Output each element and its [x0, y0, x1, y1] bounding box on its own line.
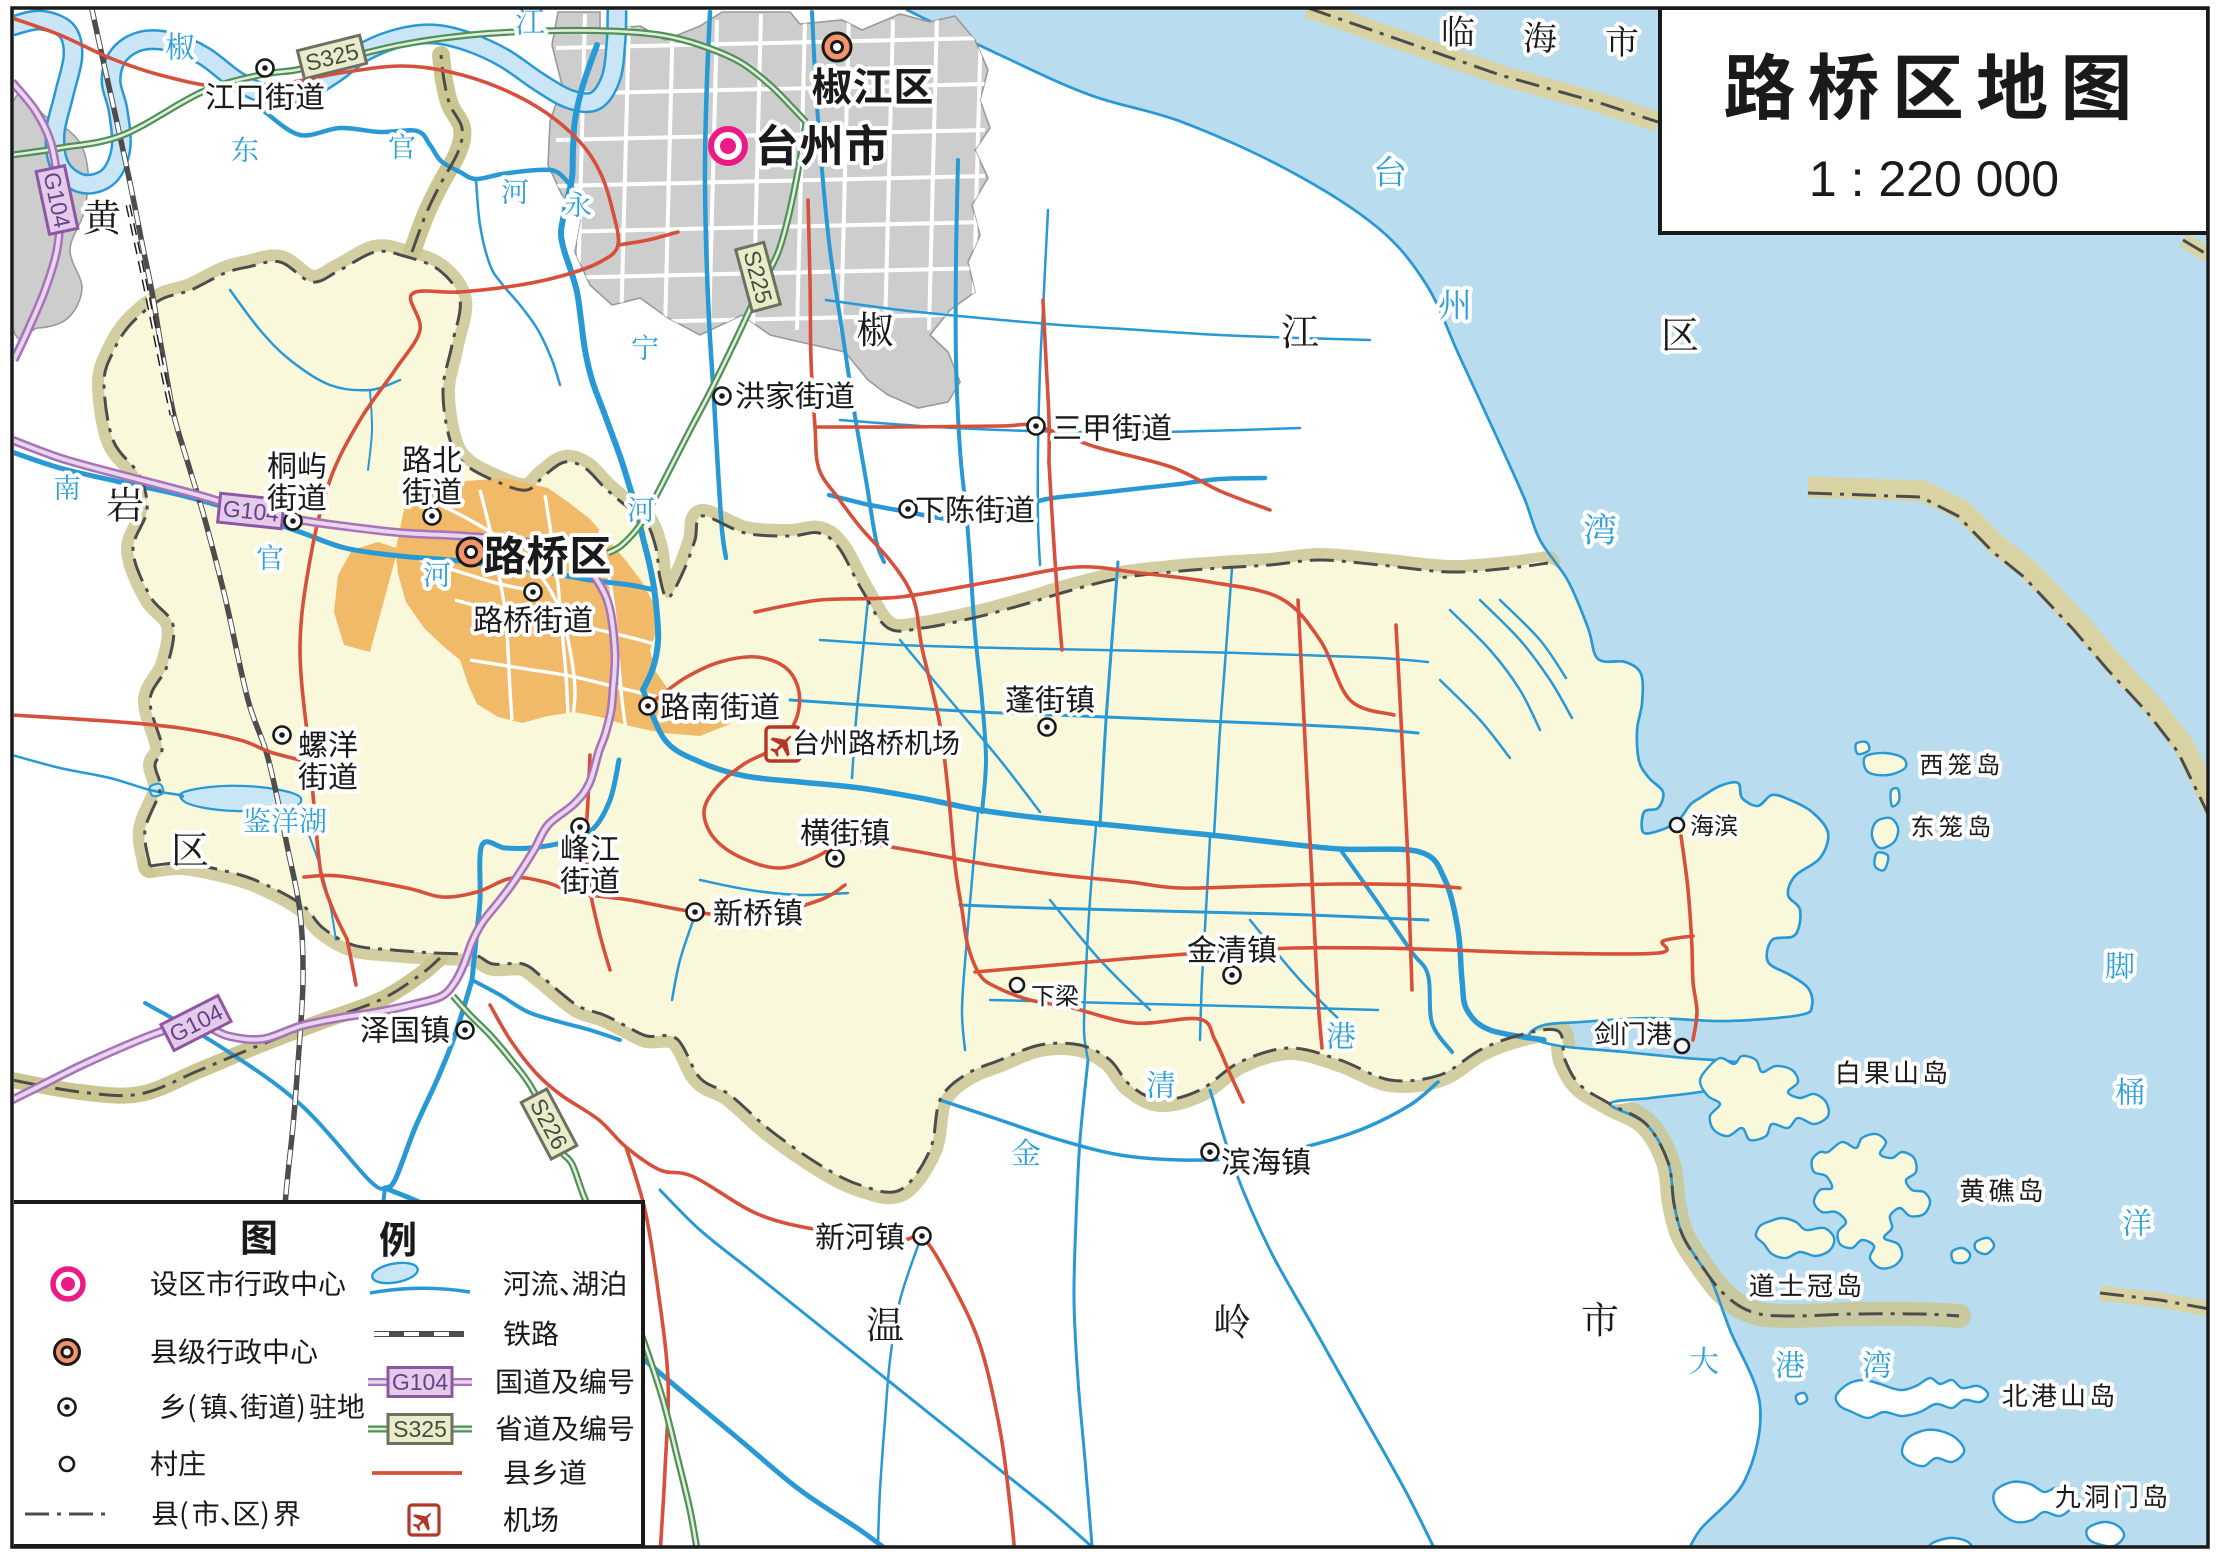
- svg-text:G104: G104: [392, 1369, 448, 1395]
- svg-text:S325: S325: [393, 1416, 447, 1442]
- svg-text:1 : 220 000: 1 : 220 000: [1809, 151, 2059, 207]
